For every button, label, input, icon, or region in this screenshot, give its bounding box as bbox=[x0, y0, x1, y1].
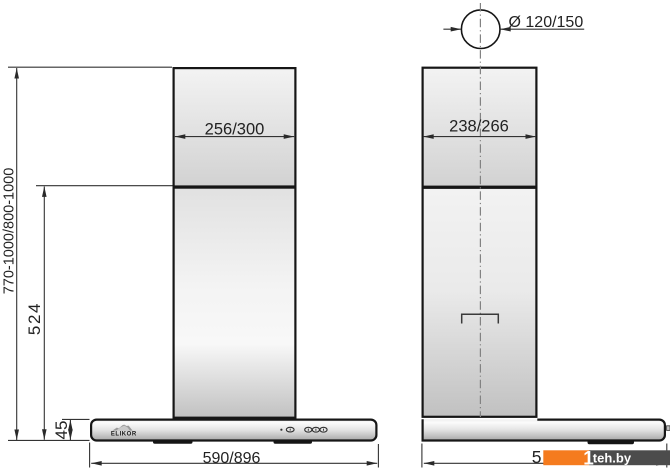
svg-text:590/896: 590/896 bbox=[203, 450, 261, 467]
svg-text:256/300: 256/300 bbox=[205, 120, 265, 138]
svg-text:524: 524 bbox=[25, 302, 44, 335]
svg-text:238/266: 238/266 bbox=[449, 118, 509, 136]
svg-text:5: 5 bbox=[532, 447, 542, 467]
svg-text:Ø 120/150: Ø 120/150 bbox=[509, 14, 584, 31]
svg-text:teh.by: teh.by bbox=[593, 451, 632, 466]
svg-text:45: 45 bbox=[52, 421, 71, 440]
svg-text:ELIKOR: ELIKOR bbox=[111, 432, 137, 438]
svg-text:770-1000/800-1000: 770-1000/800-1000 bbox=[1, 168, 17, 295]
